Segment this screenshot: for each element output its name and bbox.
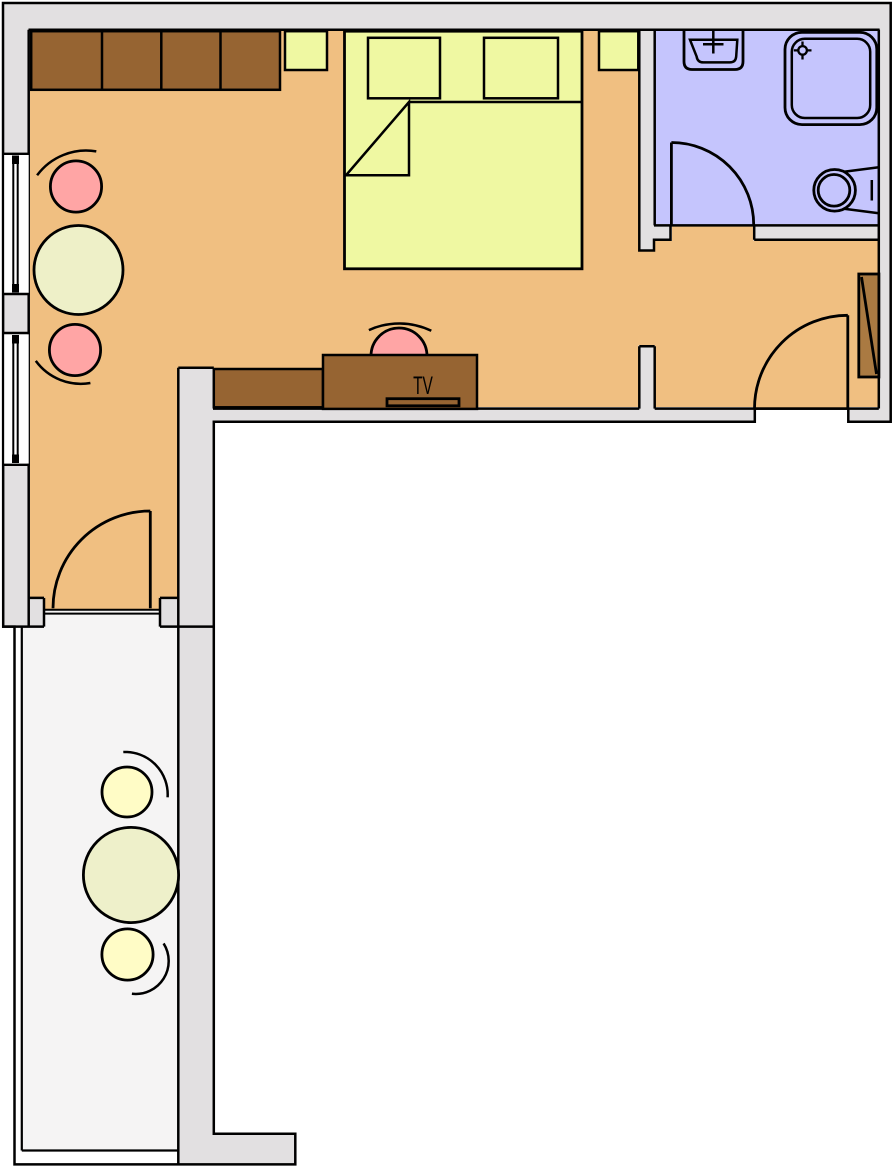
svg-text:TV: TV	[413, 372, 433, 400]
